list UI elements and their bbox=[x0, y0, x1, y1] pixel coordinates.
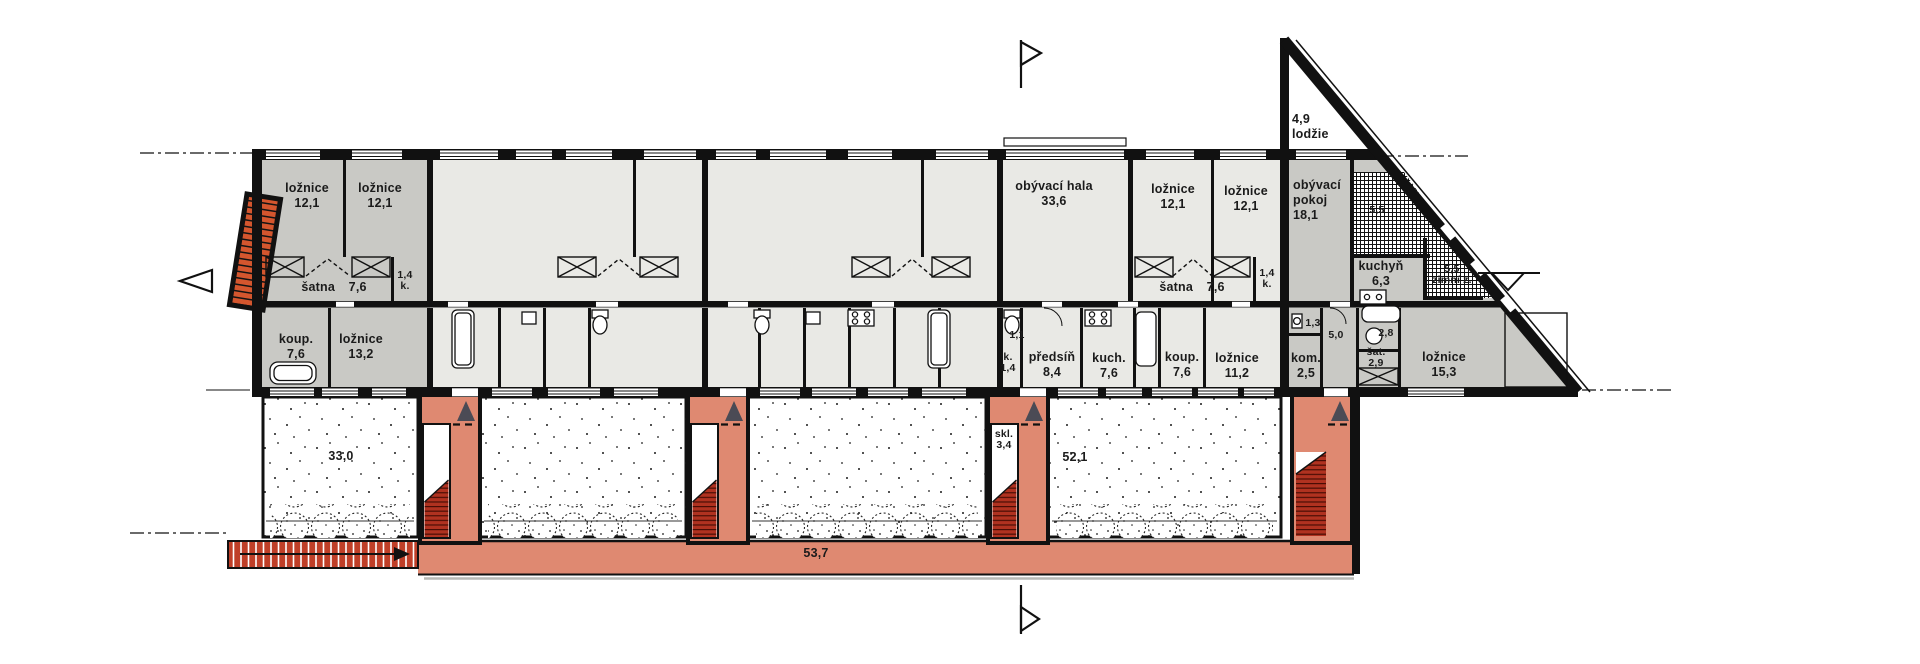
room-label-bedroom-f: ložnice 11,2 bbox=[1206, 351, 1268, 381]
stair-core-1 bbox=[420, 393, 480, 543]
stove-icon bbox=[1085, 310, 1111, 326]
room-label-bedroom-a: ložnice 12,1 bbox=[272, 181, 342, 211]
room-area: 3,4 bbox=[988, 440, 1020, 451]
room-name: lodžie bbox=[1292, 127, 1346, 142]
room-label-wc-mid: 1,1 bbox=[1004, 330, 1030, 341]
bathtub-icon bbox=[1362, 306, 1400, 322]
room-name: ložnice bbox=[272, 181, 342, 196]
room-name: pokoj bbox=[1293, 193, 1355, 208]
room-label-living-hall: obývací hala 33,6 bbox=[1000, 179, 1108, 209]
room-label-bedroom-g: ložnice 15,3 bbox=[1412, 350, 1476, 380]
room-area: 12,1 bbox=[1212, 199, 1280, 214]
room-label-kitchen-lower: kuch. 7,6 bbox=[1084, 351, 1134, 381]
room-name: obývací bbox=[1293, 178, 1355, 193]
room-name: ložnice bbox=[1212, 184, 1280, 199]
room-name: šatna bbox=[1159, 280, 1193, 294]
room-area: 33,6 bbox=[1000, 194, 1108, 209]
room-label-terrace-upper: 5,5 bbox=[1362, 205, 1392, 216]
area-label-garden-d: 52,1 bbox=[1050, 450, 1100, 465]
room-area: 7,6 bbox=[1084, 366, 1134, 381]
room-name: kuchyň bbox=[1348, 259, 1414, 274]
room-name: kuch. bbox=[1084, 351, 1134, 366]
room-area: 52,1 bbox=[1050, 450, 1100, 465]
area-label-garden-a: 33,0 bbox=[316, 449, 366, 464]
room-label-wardrobe-sat: šat. 2,9 bbox=[1356, 347, 1396, 369]
room-label-wardrobe-left: šatna 7,6 bbox=[284, 280, 384, 295]
stair-core-3 bbox=[988, 393, 1048, 543]
room-area: 5,5 bbox=[1362, 205, 1392, 216]
room-label-loggia: 4,9 lodžie bbox=[1292, 112, 1346, 142]
stove-icon bbox=[848, 310, 874, 326]
room-area: 12,1 bbox=[345, 196, 415, 211]
room-label-bedroom-e: ložnice 13,2 bbox=[328, 332, 394, 362]
area-label-walkway: 53,7 bbox=[788, 546, 844, 561]
room-area: 53,7 bbox=[788, 546, 844, 561]
open-triangle-icon bbox=[180, 270, 212, 292]
room-area: 1,3 bbox=[1300, 318, 1326, 329]
balcony-railing bbox=[1004, 138, 1126, 146]
room-label-living-room: obývací pokoj 18,1 bbox=[1293, 178, 1355, 222]
room-name: ložnice bbox=[1138, 182, 1208, 197]
room-label-closet-28: 2,8 bbox=[1372, 328, 1400, 339]
room-name: šatna bbox=[301, 280, 335, 294]
room-name: koup. bbox=[270, 332, 322, 347]
room-area: 11,2 bbox=[1206, 366, 1268, 381]
section-marker-bottom bbox=[1021, 585, 1039, 634]
room-area: 5,0 bbox=[1322, 330, 1350, 341]
walkway-strip bbox=[418, 541, 1354, 579]
room-name: k. bbox=[1254, 279, 1280, 290]
room-label-wardrobe-right: šatna 7,6 bbox=[1140, 280, 1244, 295]
flag-marker-icon bbox=[1021, 607, 1039, 631]
room-name: ložnice bbox=[328, 332, 394, 347]
stair-core-4 bbox=[1292, 393, 1352, 543]
room-label-closet-left: 1,4 k. bbox=[392, 270, 418, 292]
room-label-bedroom-d: ložnice 12,1 bbox=[1212, 184, 1280, 214]
room-label-winter-garden: 5,5 zimní z. bbox=[1426, 264, 1478, 286]
room-area: 15,3 bbox=[1412, 365, 1476, 380]
room-area: 6,3 bbox=[1348, 274, 1414, 289]
room-label-kitchen-right: kuchyň 6,3 bbox=[1348, 259, 1414, 289]
room-area: 12,1 bbox=[1138, 197, 1208, 212]
room-name: kom. bbox=[1286, 351, 1326, 366]
room-label-storage: skl. 3,4 bbox=[988, 429, 1020, 451]
room-label-bedroom-b: ložnice 12,1 bbox=[345, 181, 415, 211]
room-label-bath-left: koup. 7,6 bbox=[270, 332, 322, 362]
bathtub-icon bbox=[1136, 312, 1156, 366]
room-name: ložnice bbox=[1206, 351, 1268, 366]
room-label-bedroom-c: ložnice 12,1 bbox=[1138, 182, 1208, 212]
room-name: předsíň bbox=[1022, 350, 1082, 365]
stair-core-2 bbox=[688, 393, 748, 543]
room-area: 1,4 bbox=[996, 363, 1020, 374]
room-label-chamber: kom. 2,5 bbox=[1286, 351, 1326, 381]
sink-icon bbox=[806, 312, 820, 324]
room-area: 7,6 bbox=[349, 280, 367, 294]
room-label-closet-right: 1,4 k. bbox=[1254, 268, 1280, 290]
room-name: k. bbox=[392, 281, 418, 292]
floor-plan: ložnice 12,1 ložnice 12,1 šatna 7,6 1,4 … bbox=[0, 0, 1920, 664]
room-area: 12,1 bbox=[272, 196, 342, 211]
room-area: 2,9 bbox=[1356, 358, 1396, 369]
room-area: 33,0 bbox=[316, 449, 366, 464]
room-name: ložnice bbox=[1412, 350, 1476, 365]
room-label-hall-lower: předsíň 8,4 bbox=[1022, 350, 1082, 380]
room-area: 7,6 bbox=[1207, 280, 1225, 294]
room-name: ložnice bbox=[345, 181, 415, 196]
room-label-bath-mid: koup. 7,6 bbox=[1158, 350, 1206, 380]
walkway-east-wall bbox=[1352, 388, 1360, 574]
section-marker-top bbox=[1021, 40, 1041, 88]
room-name: zimní z. bbox=[1426, 275, 1478, 286]
room-label-wc-right: 1,3 bbox=[1300, 318, 1326, 329]
entrance-ramp bbox=[228, 541, 418, 568]
room-area: 13,2 bbox=[328, 347, 394, 362]
garden-plots bbox=[263, 397, 1281, 538]
room-name: obývací hala bbox=[1000, 179, 1108, 194]
level-marker-left bbox=[180, 270, 212, 292]
room-label-hall-right: 5,0 bbox=[1322, 330, 1350, 341]
room-area: 8,4 bbox=[1022, 365, 1082, 380]
room-name: koup. bbox=[1158, 350, 1206, 365]
room-area: 1,1 bbox=[1004, 330, 1030, 341]
room-area: 7,6 bbox=[1158, 365, 1206, 380]
room-area: 7,6 bbox=[270, 347, 322, 362]
room-area: 18,1 bbox=[1293, 208, 1355, 223]
room-area: 4,9 bbox=[1292, 112, 1346, 127]
room-area: 2,8 bbox=[1372, 328, 1400, 339]
room-area: 2,5 bbox=[1286, 366, 1326, 381]
sink-icon bbox=[522, 312, 536, 324]
flag-marker-icon bbox=[1021, 42, 1041, 65]
room-label-closet-lower: k. 1,4 bbox=[996, 352, 1020, 374]
